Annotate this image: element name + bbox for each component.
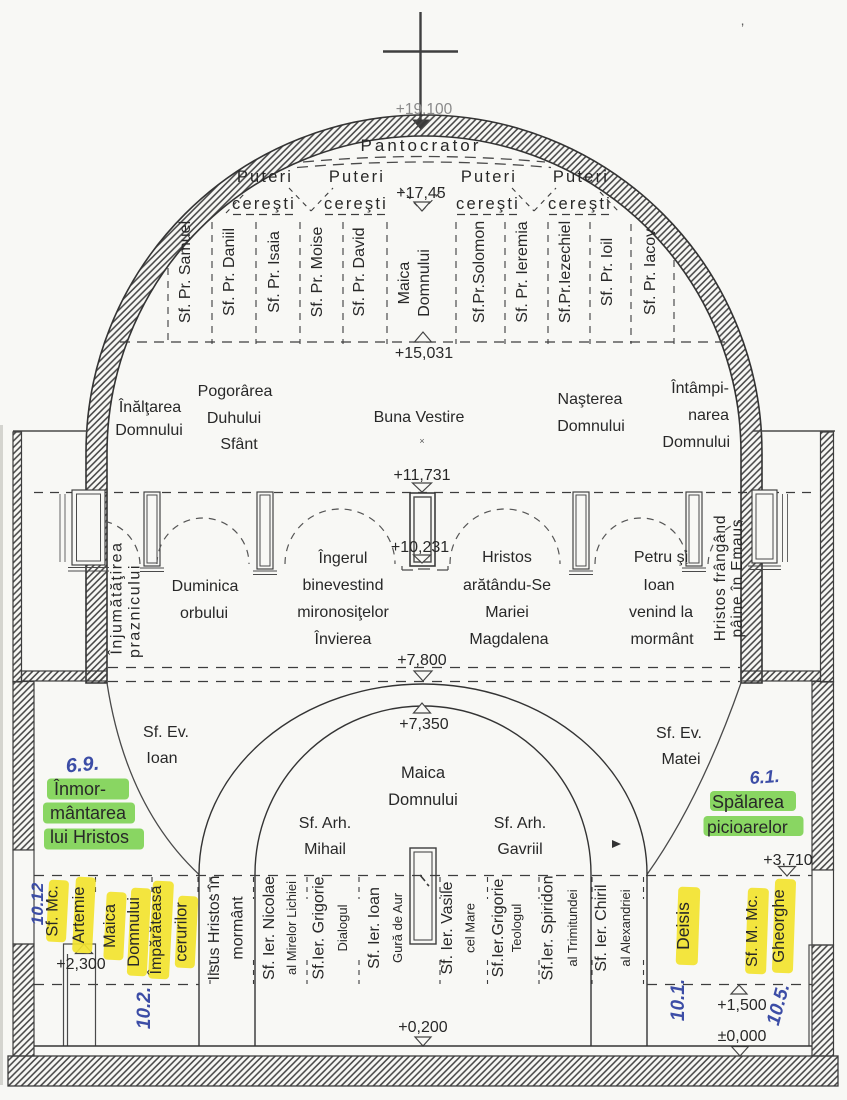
svg-text:Matei: Matei <box>661 751 700 768</box>
svg-text:binevestind: binevestind <box>303 577 384 594</box>
svg-text:10.1.: 10.1. <box>668 979 689 1021</box>
svg-text:Sfânt: Sfânt <box>220 436 258 453</box>
svg-text:Domnului: Domnului <box>125 897 143 967</box>
svg-text:Sf. Ier. Nicolae: Sf. Ier. Nicolae <box>261 876 278 980</box>
svg-text:Hristos frângând: Hristos frângând <box>712 515 729 642</box>
svg-text:Ioan: Ioan <box>146 750 177 767</box>
svg-text:Maica: Maica <box>401 764 446 782</box>
svg-text:al Alexandriei: al Alexandriei <box>618 889 633 966</box>
svg-text:Teologul: Teologul <box>509 904 524 953</box>
svg-text:Sf.Pr.Solomon: Sf.Pr.Solomon <box>471 221 488 323</box>
svg-text:Duhului: Duhului <box>207 410 261 427</box>
svg-text:Sf. Pr. Isaia: Sf. Pr. Isaia <box>266 231 283 313</box>
svg-text:Petru şi: Petru şi <box>634 549 688 566</box>
svg-text:Mihail: Mihail <box>304 841 346 858</box>
svg-text:Gură de Aur: Gură de Aur <box>390 892 405 963</box>
svg-text:Pantocrator: Pantocrator <box>361 136 482 155</box>
svg-text:Domnului: Domnului <box>115 422 183 439</box>
svg-text:mormânt: mormânt <box>630 631 694 648</box>
svg-text:cereşti: cereşti <box>232 195 296 213</box>
svg-text:+17,45: +17,45 <box>396 185 445 202</box>
svg-text:narea: narea <box>688 407 729 424</box>
svg-text:Îngerul: Îngerul <box>318 548 368 567</box>
svg-text:Sf. Arh.: Sf. Arh. <box>299 815 351 832</box>
svg-text:arătându-Se: arătându-Se <box>463 577 551 594</box>
svg-text:Maica: Maica <box>101 903 119 948</box>
svg-text:Înmor-: Înmor- <box>53 779 106 799</box>
svg-text:Sf. Pr. Daniil: Sf. Pr. Daniil <box>221 228 238 316</box>
svg-text:+0,200: +0,200 <box>398 1019 447 1036</box>
svg-text:mormânt: mormânt <box>230 896 247 960</box>
svg-text:Sf. Ier. Chiril: Sf. Ier. Chiril <box>593 884 610 971</box>
svg-text:Duminica: Duminica <box>172 578 239 595</box>
svg-text:6.9.: 6.9. <box>65 753 100 778</box>
svg-text:venind la: venind la <box>629 604 693 621</box>
svg-text:Sf. Arh.: Sf. Arh. <box>494 815 546 832</box>
svg-text:+1,500: +1,500 <box>717 997 766 1014</box>
svg-text:Împărăteasa: Împărăteasa <box>146 885 165 975</box>
svg-text:Sf. Pr. David: Sf. Pr. David <box>351 228 368 317</box>
svg-text:’: ’ <box>741 20 744 36</box>
svg-text:orbului: orbului <box>180 605 228 622</box>
svg-text:Puteri: Puteri <box>553 168 609 186</box>
svg-text:pâine în Emaus: pâine în Emaus <box>729 519 746 638</box>
svg-text:Puteri: Puteri <box>237 168 293 186</box>
svg-text:Artemie: Artemie <box>70 887 88 944</box>
svg-text:Dialogul: Dialogul <box>335 904 350 951</box>
svg-text:Sf. Pr. Ieremia: Sf. Pr. Ieremia <box>514 221 531 322</box>
svg-text:cereşti: cereşti <box>324 195 388 213</box>
svg-text:Sf. M. Mc.: Sf. M. Mc. <box>744 895 761 967</box>
svg-text:Sf. Ier. Ioan: Sf. Ier. Ioan <box>366 887 383 969</box>
svg-text:Deisis: Deisis <box>673 902 693 950</box>
svg-text:cerurilor: cerurilor <box>173 902 191 962</box>
svg-text:+7,800: +7,800 <box>397 652 446 669</box>
svg-text:Sf. Pr. Moise: Sf. Pr. Moise <box>309 227 326 318</box>
svg-text:cel Mare: cel Mare <box>463 903 478 953</box>
svg-text:Sf.Pr.Iezechiel: Sf.Pr.Iezechiel <box>557 221 574 323</box>
svg-text:praznicului: praznicului <box>127 564 144 658</box>
svg-text:Domnului: Domnului <box>416 249 433 317</box>
svg-text:+2,300: +2,300 <box>56 956 105 973</box>
svg-text:cereşti: cereşti <box>548 195 612 213</box>
svg-text:Înjumătăţirea: Înjumătăţirea <box>107 541 126 655</box>
svg-text:+11,731: +11,731 <box>393 467 450 484</box>
svg-text:+15,031: +15,031 <box>395 345 453 362</box>
svg-text:Maica: Maica <box>396 262 413 305</box>
svg-text:Spălarea: Spălarea <box>712 792 785 812</box>
svg-text:10.2.: 10.2. <box>134 987 155 1029</box>
svg-text:Sf. Pr. Ioil: Sf. Pr. Ioil <box>599 238 616 306</box>
svg-text:Mariei: Mariei <box>485 604 529 621</box>
svg-text:Sf.Ier. Spiridon: Sf.Ier. Spiridon <box>540 876 557 981</box>
svg-text:Sf. Ev.: Sf. Ev. <box>143 724 189 741</box>
svg-text:+7,350: +7,350 <box>399 716 448 733</box>
svg-text:Gavriil: Gavriil <box>497 841 542 858</box>
svg-text:×: × <box>419 436 424 446</box>
svg-text:Naşterea: Naşterea <box>558 391 623 408</box>
svg-text:Sf. Ev.: Sf. Ev. <box>656 725 702 742</box>
svg-text:Buna Vestire: Buna Vestire <box>374 409 465 426</box>
svg-text:Domnului: Domnului <box>388 791 458 809</box>
svg-text:Înălţarea: Înălţarea <box>118 397 181 416</box>
svg-text:10.12: 10.12 <box>28 882 47 925</box>
svg-text:+10,231: +10,231 <box>391 539 449 556</box>
svg-text:picioarelor: picioarelor <box>707 817 788 837</box>
svg-text:6.1.: 6.1. <box>749 766 780 788</box>
svg-text:cereşti: cereşti <box>456 195 520 213</box>
svg-text:Puteri: Puteri <box>461 168 517 186</box>
svg-text:mironosiţelor: mironosiţelor <box>297 604 389 621</box>
svg-text:Puteri: Puteri <box>329 168 385 186</box>
svg-text:±0,000: ±0,000 <box>718 1028 767 1045</box>
svg-text:Pogorârea: Pogorârea <box>198 383 273 400</box>
svg-text:Iisus Hristos în: Iisus Hristos în <box>206 876 223 981</box>
svg-text:lui Hristos: lui Hristos <box>50 827 129 847</box>
svg-text:Sf. Pr. Iacov: Sf. Pr. Iacov <box>642 229 659 315</box>
svg-text:mântarea: mântarea <box>50 803 127 823</box>
svg-text:Învierea: Învierea <box>314 629 372 648</box>
svg-text:Sf.Ier. Grigorie: Sf.Ier. Grigorie <box>311 876 328 979</box>
svg-text:Sf.Ier.Grigorie: Sf.Ier.Grigorie <box>490 879 507 978</box>
svg-text:Gheorghe: Gheorghe <box>770 889 788 962</box>
svg-text:Magdalena: Magdalena <box>469 631 548 648</box>
svg-text:al Mirelor Lichiei: al Mirelor Lichiei <box>284 881 299 975</box>
svg-text:Sf. Pr. Samuel: Sf. Pr. Samuel <box>177 221 194 323</box>
svg-text:Domnului: Domnului <box>557 418 625 435</box>
svg-text:Ioan: Ioan <box>643 577 674 594</box>
svg-text:Sf. Ier. Vasile: Sf. Ier. Vasile <box>439 881 456 974</box>
svg-text:Hristos: Hristos <box>482 549 532 566</box>
svg-text:Domnului: Domnului <box>662 434 730 451</box>
svg-text:al Trimitundei: al Trimitundei <box>565 889 580 966</box>
svg-text:Întâmpi-: Întâmpi- <box>670 378 729 397</box>
